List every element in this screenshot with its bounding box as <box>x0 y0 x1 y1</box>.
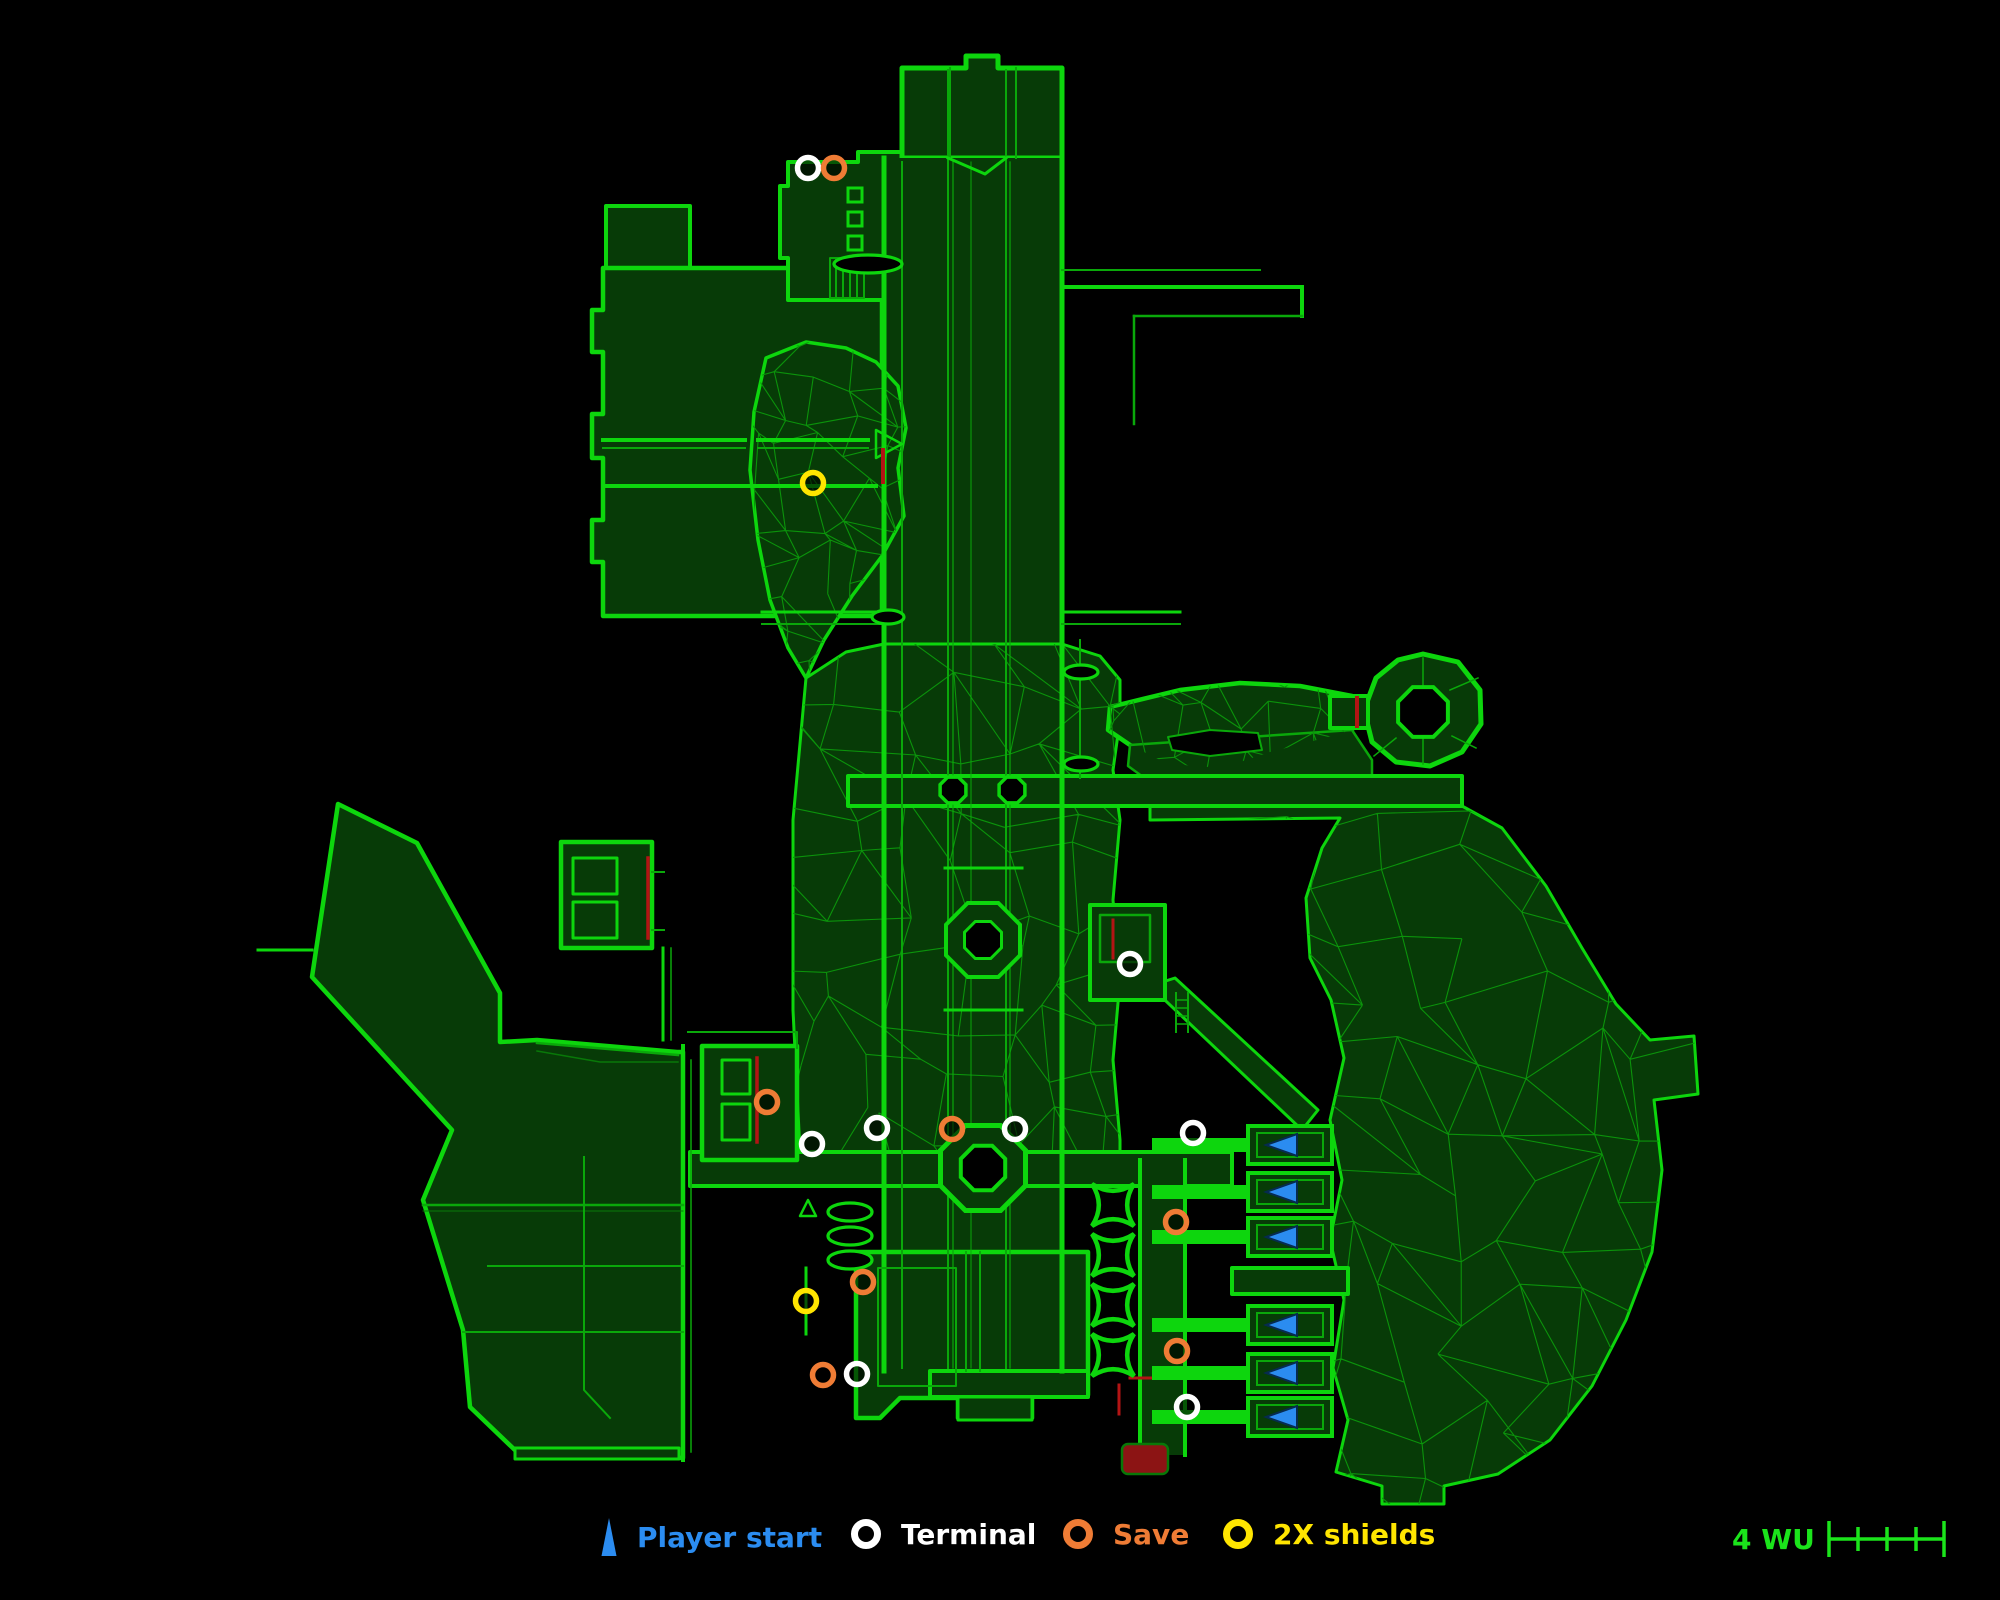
map-scale-label: 4 WU <box>1732 1523 1815 1556</box>
octagon-structure <box>999 777 1025 803</box>
platform-oval <box>828 1227 872 1245</box>
map-region-wavy-hole <box>1168 730 1262 756</box>
terminal-marker <box>1177 1397 1198 1418</box>
cushion-room <box>1092 1234 1134 1276</box>
save-marker <box>1167 1341 1188 1362</box>
shields-marker <box>803 473 824 494</box>
legend-label-terminal: Terminal <box>901 1518 1036 1551</box>
map-line <box>800 1200 816 1216</box>
legend-label-save: Save <box>1113 1518 1189 1551</box>
terminal-icon <box>848 1516 884 1552</box>
terminal-marker <box>847 1364 868 1385</box>
cushion-room <box>1092 1184 1134 1226</box>
map-region-left-bottom-bar <box>515 1448 679 1459</box>
platform-oval <box>872 610 904 624</box>
cushion-room <box>1092 1334 1134 1376</box>
map-region-bay-cross-band <box>1232 1268 1348 1294</box>
save-marker <box>1166 1212 1187 1233</box>
octagon-core <box>965 922 1002 959</box>
map-region-bottom-tab <box>958 1397 1032 1420</box>
shields-marker <box>796 1291 817 1312</box>
octagon-core <box>961 1146 1005 1190</box>
terminal-marker <box>1120 954 1141 975</box>
map-scale: 4 WU <box>1732 1516 1951 1562</box>
legend-item-save: Save <box>1060 1516 1189 1552</box>
terminal-marker <box>1183 1123 1204 1144</box>
bay-arm <box>1152 1366 1248 1380</box>
map-region-ring-stub <box>1330 696 1368 728</box>
map-region-top-room <box>902 56 1062 158</box>
legend: Player start Terminal Save 2X shields 4 … <box>0 1516 2000 1586</box>
terminal-marker <box>867 1118 888 1139</box>
level-map-canvas[interactable] <box>0 0 2000 1600</box>
platform-oval <box>828 1251 872 1269</box>
save-marker <box>813 1365 834 1386</box>
platform-oval <box>1064 757 1098 771</box>
bay-arm <box>1152 1230 1248 1244</box>
legend-label-shields: 2X shields <box>1273 1518 1435 1551</box>
legend-item-terminal: Terminal <box>848 1516 1036 1552</box>
terminal-marker <box>1005 1119 1026 1140</box>
map-viewer-screen: { "legend": { "items": [ {"id":"player-s… <box>0 0 2000 1600</box>
save-marker <box>853 1272 874 1293</box>
terminal-marker <box>802 1134 823 1155</box>
terminal-marker <box>798 158 819 179</box>
legend-item-player-start: Player start <box>598 1516 822 1558</box>
platform-oval <box>834 255 902 273</box>
bay-arm <box>1152 1410 1248 1424</box>
legend-item-shields: 2X shields <box>1220 1516 1435 1552</box>
platform-oval <box>1064 665 1098 679</box>
scale-ruler-icon <box>1825 1516 1951 1562</box>
shields-icon <box>1220 1516 1256 1552</box>
player-start-icon <box>598 1516 620 1558</box>
save-marker <box>824 158 845 179</box>
legend-label-player-start: Player start <box>637 1521 822 1554</box>
save-marker <box>942 1119 963 1140</box>
cushion-room <box>1092 1284 1134 1326</box>
octagon-structure <box>1398 687 1448 737</box>
map-region-surround <box>793 644 1120 1152</box>
octagon-structure <box>940 777 966 803</box>
map-region-trunk-bottom-bar <box>930 1371 1088 1397</box>
bay-arm <box>1152 1318 1248 1332</box>
red-zone <box>1122 1444 1168 1474</box>
save-icon <box>1060 1516 1096 1552</box>
map-region-top-left-upper <box>606 206 690 268</box>
bay-arm <box>1152 1185 1248 1199</box>
save-marker <box>757 1092 778 1113</box>
platform-oval <box>828 1203 872 1221</box>
